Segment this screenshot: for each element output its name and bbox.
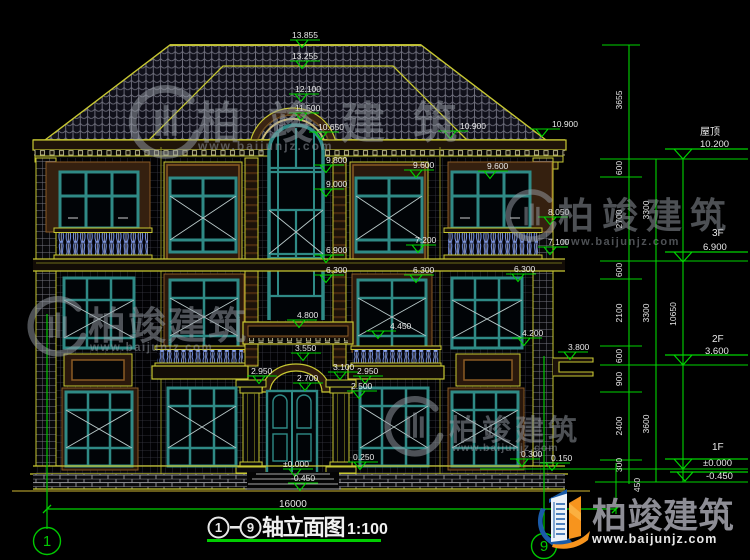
svg-text:450: 450 [632, 478, 642, 492]
svg-text:9.600: 9.600 [487, 161, 509, 171]
svg-text:1: 1 [43, 533, 51, 550]
svg-text:6.300: 6.300 [413, 265, 435, 275]
svg-text:10650: 10650 [668, 302, 678, 326]
svg-text:-0.450: -0.450 [706, 471, 733, 482]
svg-text:13.255: 13.255 [292, 51, 318, 61]
svg-text:7.200: 7.200 [415, 235, 437, 245]
svg-text:16000: 16000 [279, 499, 307, 510]
svg-text:2.950: 2.950 [251, 366, 273, 376]
svg-text:10.200: 10.200 [700, 139, 729, 150]
svg-text:1:100: 1:100 [347, 521, 388, 538]
svg-text:www.baijunjz.com: www.baijunjz.com [89, 342, 213, 354]
svg-text:轴立面图: 轴立面图 [262, 515, 345, 540]
svg-text:2.700: 2.700 [297, 373, 319, 383]
svg-text:-0.450: -0.450 [291, 473, 315, 483]
svg-text:3655: 3655 [614, 90, 624, 109]
svg-text:3.550: 3.550 [295, 343, 317, 353]
svg-text:4.800: 4.800 [297, 310, 319, 320]
svg-text:0.250: 0.250 [353, 452, 375, 462]
svg-text:3.100: 3.100 [333, 362, 355, 372]
svg-text:2.500: 2.500 [351, 381, 373, 391]
svg-text:900: 900 [614, 372, 624, 386]
svg-text:±0.000: ±0.000 [703, 458, 732, 469]
svg-text:600: 600 [614, 349, 624, 363]
svg-text:www.baijunjz.com: www.baijunjz.com [451, 442, 559, 454]
svg-text:www.baijunjz.com: www.baijunjz.com [560, 236, 680, 248]
svg-text:3300: 3300 [641, 303, 651, 322]
svg-text:3.800: 3.800 [568, 342, 590, 352]
svg-text:9: 9 [247, 520, 254, 535]
svg-text:6.900: 6.900 [703, 242, 727, 253]
svg-text:6.300: 6.300 [326, 265, 348, 275]
svg-text:1: 1 [215, 520, 222, 535]
svg-text:6.900: 6.900 [326, 245, 348, 255]
svg-text:屋顶: 屋顶 [700, 126, 720, 138]
svg-text:0.150: 0.150 [551, 453, 573, 463]
svg-text:600: 600 [614, 161, 624, 175]
svg-text:柏竣建筑: 柏竣建筑 [558, 195, 734, 236]
svg-text:13.855: 13.855 [292, 30, 318, 40]
svg-text:9.000: 9.000 [326, 179, 348, 189]
svg-text:3600: 3600 [641, 414, 651, 433]
svg-text:柏竣建筑: 柏竣建筑 [592, 496, 734, 536]
svg-text:www.baijunjz.com: www.baijunjz.com [197, 139, 334, 153]
svg-text:2400: 2400 [614, 416, 624, 435]
svg-text:9.800: 9.800 [326, 155, 348, 165]
svg-text:12.100: 12.100 [295, 84, 321, 94]
svg-text:600: 600 [614, 263, 624, 277]
svg-text:4.200: 4.200 [522, 328, 544, 338]
svg-text:www.baijunjz.com: www.baijunjz.com [591, 532, 717, 546]
svg-text:4.450: 4.450 [390, 321, 412, 331]
svg-text:2.950: 2.950 [357, 366, 379, 376]
svg-text:1F: 1F [712, 442, 724, 453]
svg-text:9.600: 9.600 [413, 160, 435, 170]
svg-text:±0.000: ±0.000 [283, 459, 309, 469]
svg-text:3.600: 3.600 [705, 346, 729, 357]
svg-text:2100: 2100 [614, 303, 624, 322]
svg-text:10.900: 10.900 [552, 119, 578, 129]
svg-text:6.300: 6.300 [514, 264, 536, 274]
svg-text:2F: 2F [712, 334, 724, 345]
